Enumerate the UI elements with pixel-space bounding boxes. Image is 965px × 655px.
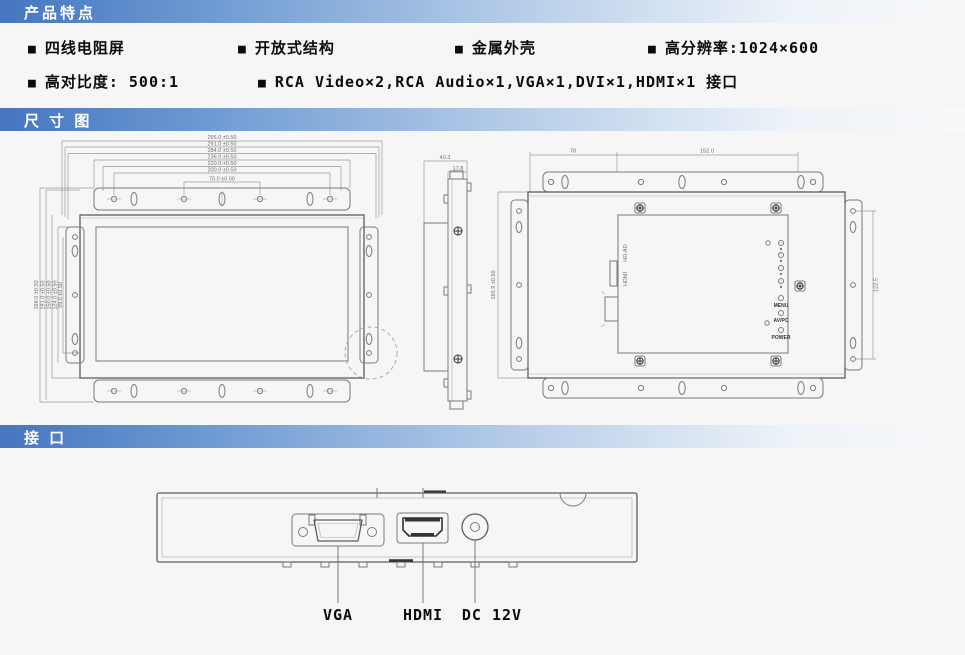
front-width-dim-label: 200.0 ±0.50 — [207, 168, 236, 174]
dimension-diagram-canvas: 296.0 ±0.50 291.0 ±0.50 284.0 ±0.50 236.… — [0, 131, 965, 425]
connector-label-dc12v: DC 12V — [462, 606, 522, 624]
rear-top-dim-left-label: 78 — [570, 149, 576, 155]
front-top-bracket — [94, 188, 350, 210]
front-width-dim-label: 284.0 ±0.50 — [207, 148, 236, 154]
button-label-avpc: AV/PC — [774, 318, 789, 324]
section-header-dimensions: 尺 寸 图 — [0, 108, 965, 131]
vga-connector — [292, 514, 384, 546]
button-label-menu: MENU — [774, 303, 789, 309]
rear-bottom-bracket — [543, 378, 823, 398]
rear-height-dim-label: 185.9 ±0.50 — [491, 270, 497, 299]
board-screw-icon — [635, 203, 645, 213]
front-bottom-bracket — [94, 380, 350, 402]
board-screw-icon — [771, 356, 781, 366]
side-screw-icon — [454, 227, 462, 235]
front-width-dim-label: 220.0 ±0.50 — [207, 161, 236, 167]
front-height-dim-label: 198.0 ±0.50 — [34, 280, 40, 309]
feature-label: 高对比度: 500:1 — [45, 73, 179, 91]
feature-item: ■开放式结构 — [238, 37, 335, 58]
connector-label-vga: VGA — [323, 606, 353, 624]
rear-left-flange — [511, 200, 528, 370]
interface-diagram-canvas: VGA HDMI DC 12V — [0, 448, 965, 655]
connector-label-hdmi: HDMI — [403, 606, 443, 624]
front-width-dim-label: 296.0 ±0.50 — [207, 135, 236, 141]
section-title-dimensions: 尺 寸 图 — [24, 110, 92, 131]
rear-right-dim-label: 122.5 — [874, 278, 880, 292]
board-screw-icon — [795, 281, 805, 291]
feature-label: RCA Video×2,RCA Audio×1,VGA×1,DVI×1,HDMI… — [275, 73, 738, 91]
front-right-bracket — [360, 227, 378, 363]
button-label-power: POWER — [772, 335, 791, 341]
board-screw-icon — [635, 356, 645, 366]
feature-label: 开放式结构 — [255, 39, 335, 57]
rear-view-drawing: 78 152.0 185.9 ±0.50 122.5 — [491, 149, 880, 399]
bullet-square-icon: ■ — [238, 42, 246, 57]
rear-top-bracket — [543, 172, 823, 192]
section-header-interfaces: 接 口 — [0, 425, 965, 448]
bullet-square-icon: ■ — [28, 76, 36, 91]
front-width-dim-label: 70.0 ±0.50 — [209, 177, 235, 183]
front-view-drawing: 296.0 ±0.50 291.0 ±0.50 284.0 ±0.50 236.… — [34, 135, 397, 402]
feature-item: ■四线电阻屏 — [28, 37, 125, 58]
dc-jack — [462, 514, 488, 540]
feature-item: ■RCA Video×2,RCA Audio×1,VGA×1,DVI×1,HDM… — [258, 71, 738, 92]
interface-panel-drawing: VGA HDMI DC 12V — [157, 488, 637, 624]
section-header-features: 产品特点 — [0, 0, 965, 23]
front-bezel — [80, 215, 364, 378]
front-height-dim-label: 99.0 ±0.50 — [58, 282, 64, 308]
side-screw-icon — [454, 355, 462, 363]
side-profile — [424, 171, 471, 409]
feature-item: ■金属外壳 — [455, 37, 536, 58]
feature-item: ■高分辨率:1024×600 — [648, 37, 819, 58]
rear-ad-board: HD-AD HDMI MENU AV/PC POWER — [601, 203, 805, 366]
connector-outline — [605, 297, 618, 321]
bullet-square-icon: ■ — [455, 42, 463, 57]
feature-label: 四线电阻屏 — [45, 39, 125, 57]
port-label-hdmi: HDMI — [623, 272, 629, 287]
board-screw-icon — [771, 203, 781, 213]
hdmi-connector — [397, 513, 448, 543]
hdmi-port-outline — [610, 261, 617, 286]
feature-label: 高分辨率:1024×600 — [665, 39, 819, 57]
side-view-drawing: 40.3 17.8 — [424, 155, 471, 409]
front-left-bracket — [66, 227, 84, 363]
feature-label: 金属外壳 — [472, 39, 536, 57]
front-width-dim-label: 291.0 ±0.50 — [207, 142, 236, 148]
rear-top-dim-right-label: 152.0 — [700, 149, 714, 155]
rear-side-dimension-lines — [498, 192, 876, 378]
leader-lines — [338, 541, 475, 604]
bullet-square-icon: ■ — [258, 76, 266, 91]
section-title-interfaces: 接 口 — [24, 427, 67, 448]
feature-item: ■高对比度: 500:1 — [28, 71, 179, 92]
port-label-hd-ad: HD-AD — [623, 244, 629, 261]
section-title-features: 产品特点 — [24, 2, 96, 23]
bullet-square-icon: ■ — [28, 42, 36, 57]
panel-notch — [560, 493, 586, 506]
front-width-dim-label: 236.0 ±0.50 — [207, 155, 236, 161]
bullet-square-icon: ■ — [648, 42, 656, 57]
panel-bottom-tabs — [283, 562, 517, 567]
product-spec-page: 产品特点 ■四线电阻屏 ■开放式结构 ■金属外壳 ■高分辨率:1024×600 … — [0, 0, 965, 655]
rear-right-flange — [845, 200, 862, 370]
side-depth-total-label: 40.3 — [440, 155, 451, 161]
